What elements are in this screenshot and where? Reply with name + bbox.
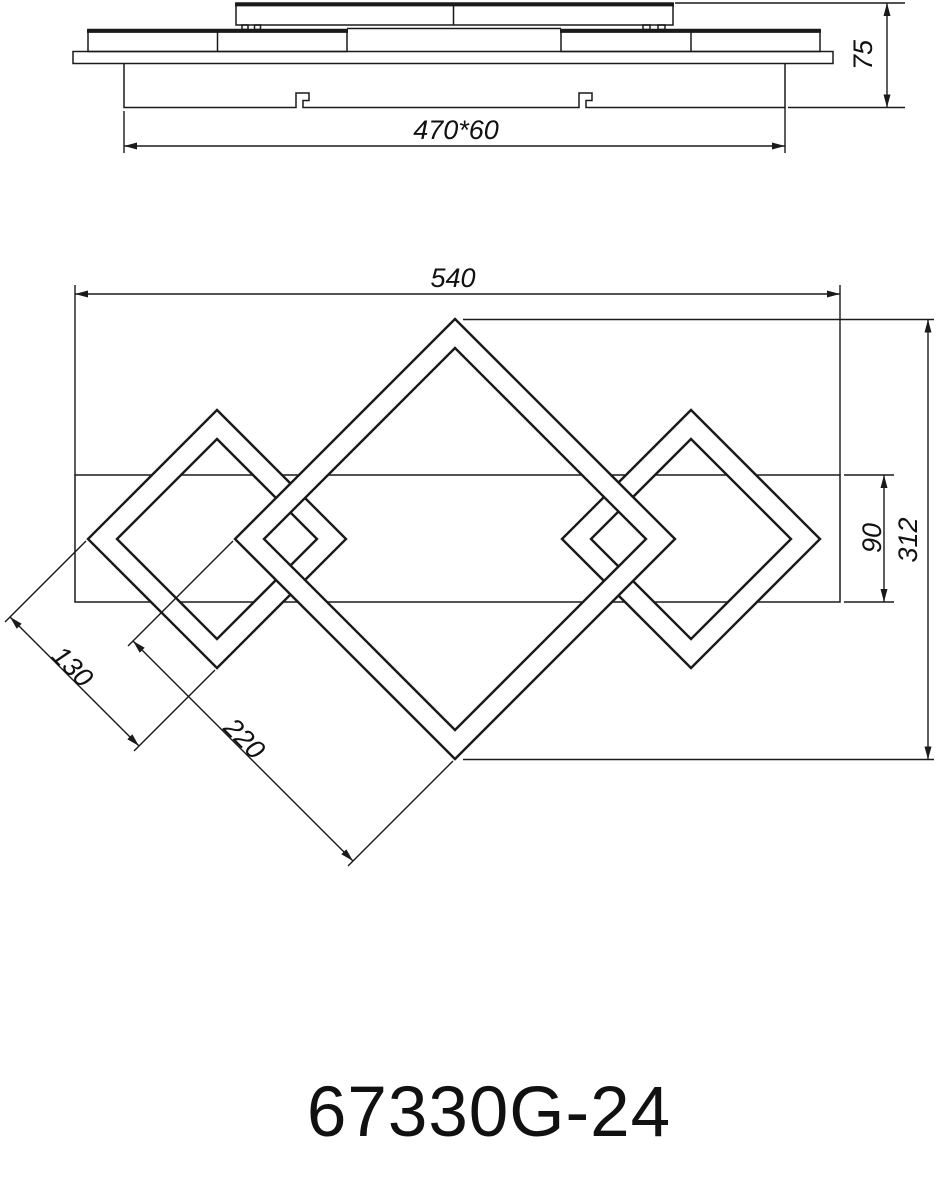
plan-central-frame <box>235 319 675 759</box>
dim-arrow <box>75 291 88 298</box>
dim-arrow <box>884 3 891 16</box>
side-left-frame <box>87 30 348 52</box>
side-right-frame <box>560 30 821 52</box>
dim-220-ext-2 <box>348 761 453 866</box>
dim-arrow <box>124 143 137 150</box>
plan-view: 540 312 90 130 <box>5 263 934 866</box>
dim-90-label: 90 <box>857 523 887 553</box>
dim-312-label: 312 <box>893 517 923 562</box>
dim-arrow <box>925 320 932 333</box>
dim-90: 90 <box>844 475 894 602</box>
dim-130-ext-1 <box>5 541 86 622</box>
plan-right-frame <box>562 410 820 668</box>
dim-arrow <box>827 291 840 298</box>
dim-arrow <box>884 95 891 108</box>
side-view: 470*60 75 <box>73 3 905 153</box>
dim-arrow <box>881 475 888 488</box>
plan-left-frame <box>88 410 346 668</box>
plan-base-bar <box>75 475 840 602</box>
dim-540-label: 540 <box>430 263 475 293</box>
dim-arrow <box>881 589 888 602</box>
dim-130: 130 <box>5 541 215 751</box>
side-mount-box <box>124 64 785 108</box>
dim-130-label: 130 <box>46 640 99 693</box>
dim-470x60: 470*60 <box>124 108 785 154</box>
side-central-frame <box>235 3 674 25</box>
dim-470x60-label: 470*60 <box>413 115 499 145</box>
dim-220-label: 220 <box>217 711 271 765</box>
product-code: 67330G-24 <box>307 1073 671 1152</box>
drawing-page: 470*60 75 540 <box>0 0 936 1200</box>
side-base-plate <box>73 52 833 64</box>
dim-arrow <box>925 747 932 760</box>
dim-75-label: 75 <box>848 39 878 70</box>
technical-drawing: 470*60 75 540 <box>0 0 936 1200</box>
dim-75: 75 <box>675 3 905 108</box>
dim-arrow <box>772 143 785 150</box>
